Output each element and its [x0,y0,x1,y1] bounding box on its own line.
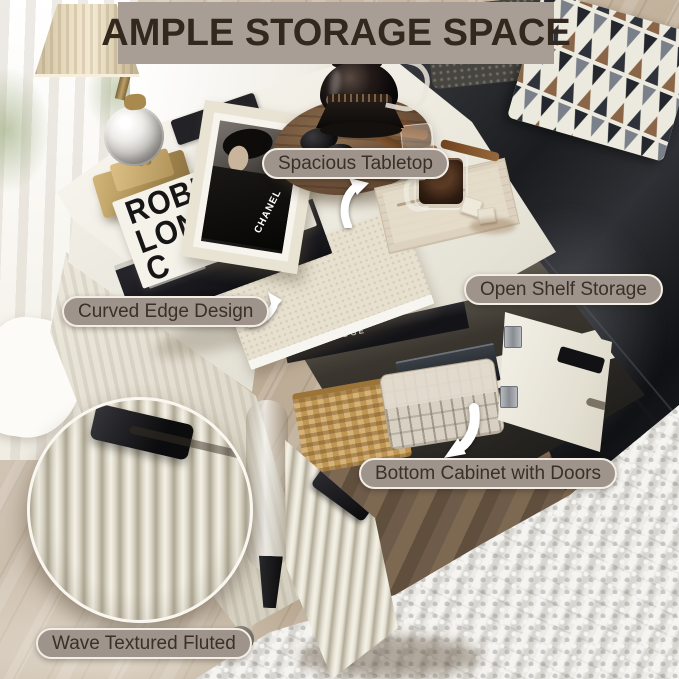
callout-open-shelf-storage: Open Shelf Storage [464,274,663,305]
callout-wave-textured-fluted: Wave Textured Fluted [36,628,252,659]
door-hinge [504,326,522,348]
lamp-glass-ball [104,106,164,166]
callout-spacious-tabletop: Spacious Tabletop [262,148,449,179]
arrow-up-icon [336,176,376,228]
pot-base [320,122,402,138]
texture-zoom-inset [27,397,253,623]
door-handle [557,346,606,374]
table-leg [246,400,288,570]
product-infographic: THE EDGE ROBE LON C [0,0,679,679]
coffee-stain [470,218,516,234]
arrow-down-icon [436,402,484,460]
page-title: AMPLE STORAGE SPACE [101,12,570,55]
inset-vignette [30,400,250,620]
title-banner: AMPLE STORAGE SPACE [118,2,554,64]
door-hinge [500,386,518,408]
callout-curved-edge-design: Curved Edge Design [62,296,269,327]
callout-bottom-cabinet: Bottom Cabinet with Doors [359,458,617,489]
